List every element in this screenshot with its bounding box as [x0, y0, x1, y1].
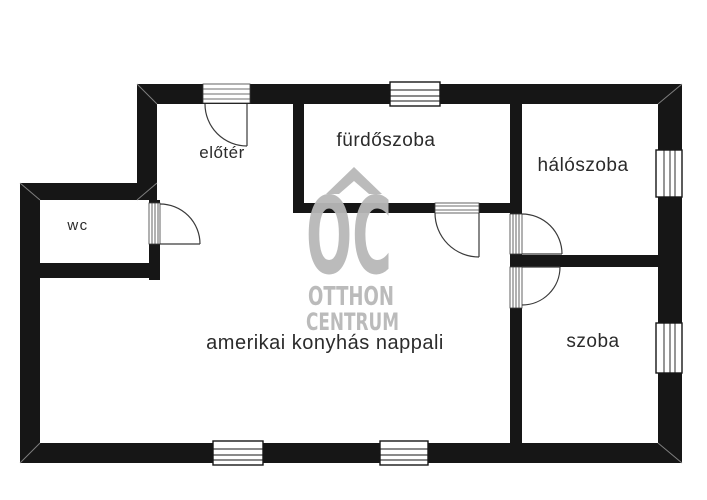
wall-wc-bottom: [20, 263, 160, 278]
wc-door-opening-icon: [149, 203, 160, 244]
room-label-nappali: amerikai konyhás nappali: [195, 332, 455, 355]
wall-wc-top: [20, 183, 157, 200]
window-icon-right-szoba: [656, 323, 682, 373]
wall-right: [658, 84, 682, 463]
room-label-furdoszoba: fürdőszoba: [325, 130, 447, 152]
room-label-wc: wc: [57, 217, 99, 234]
watermark-logo-text: OC: [306, 175, 392, 298]
window-icon-bottom-left: [213, 441, 263, 465]
wall-center-lower: [510, 308, 522, 443]
haloszoba-door-opening-icon: [510, 214, 522, 254]
wall-left: [20, 183, 40, 463]
wall-bottom: [20, 443, 682, 463]
furdoszoba-door-opening-icon: [435, 203, 479, 213]
haloszoba-door-arc-icon: [522, 214, 562, 254]
window-icon-top: [390, 82, 440, 106]
room-label-szoba: szoba: [557, 331, 629, 353]
wall-center-upper: [510, 104, 522, 214]
window-icon-bottom-right: [380, 441, 428, 465]
szoba-door-arc-icon: [522, 267, 560, 305]
wall-halo-szoba: [510, 255, 658, 267]
room-label-eloter: előtér: [186, 143, 258, 163]
wall-wc-right-lower: [149, 244, 160, 280]
watermark-logo: OC OTTHON CENTRUM: [306, 167, 399, 336]
szoba-door-opening-icon: [510, 267, 522, 308]
room-label-haloszoba: hálószoba: [527, 155, 639, 177]
wc-door-arc-icon: [160, 204, 200, 244]
entrance-door-opening-icon: [203, 84, 250, 103]
floorplan-drawing: OC OTTHON CENTRUM: [0, 0, 707, 500]
floorplan-image: OC OTTHON CENTRUM előtér fürdőszoba háló…: [0, 0, 707, 500]
entrance-door-arc-icon: [205, 104, 247, 146]
window-icon-right-haloszoba: [656, 150, 682, 197]
wall-eloter-furdo: [293, 104, 304, 213]
furdoszoba-door-arc-icon: [435, 213, 479, 257]
